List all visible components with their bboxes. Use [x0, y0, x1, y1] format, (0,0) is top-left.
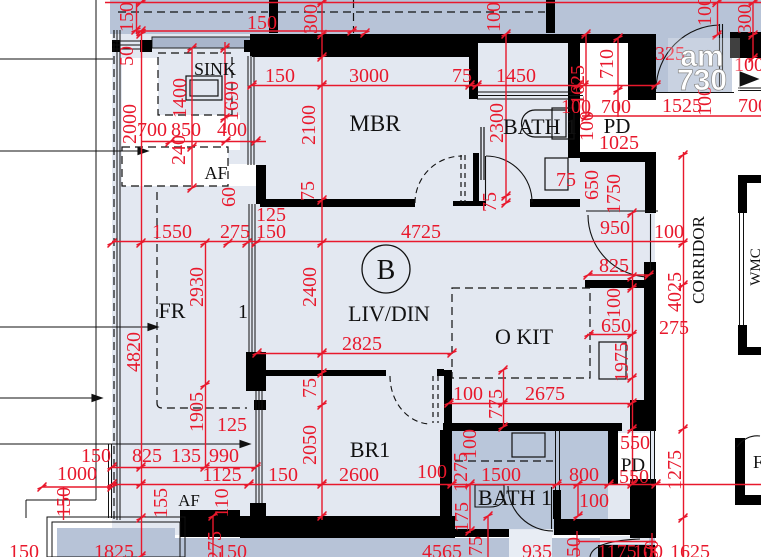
svg-text:MBR: MBR	[349, 111, 401, 136]
svg-text:700: 700	[137, 119, 167, 141]
svg-text:100: 100	[654, 221, 684, 243]
svg-text:75: 75	[452, 65, 472, 87]
svg-text:110: 110	[211, 488, 233, 517]
svg-text:1000: 1000	[57, 463, 97, 485]
svg-text:SINK: SINK	[194, 59, 236, 79]
svg-text:4565: 4565	[422, 541, 462, 557]
svg-text:75: 75	[297, 181, 319, 201]
svg-text:50: 50	[563, 537, 585, 557]
svg-text:100: 100	[459, 429, 481, 459]
svg-text:150: 150	[116, 2, 138, 32]
svg-text:825: 825	[132, 445, 162, 467]
svg-text:PD: PD	[621, 455, 645, 476]
svg-text:50: 50	[116, 46, 138, 66]
svg-text:1400: 1400	[169, 78, 191, 118]
svg-text:1175: 1175	[597, 541, 636, 557]
svg-text:300: 300	[300, 4, 322, 34]
svg-text:75: 75	[465, 536, 487, 556]
svg-text:O KIT: O KIT	[495, 324, 554, 349]
svg-text:2100: 2100	[298, 105, 320, 145]
svg-text:300: 300	[734, 4, 756, 34]
svg-text:1625: 1625	[567, 65, 589, 105]
svg-text:100: 100	[483, 2, 505, 32]
svg-text:100: 100	[579, 490, 609, 512]
svg-text:730: 730	[677, 64, 727, 97]
svg-text:4725: 4725	[401, 221, 441, 243]
svg-text:100: 100	[417, 461, 447, 483]
svg-text:700: 700	[738, 95, 761, 117]
svg-text:75: 75	[479, 192, 501, 212]
svg-text:2000: 2000	[119, 104, 141, 144]
svg-text:150: 150	[268, 464, 298, 486]
svg-text:1975: 1975	[611, 342, 633, 382]
svg-text:400: 400	[217, 119, 247, 141]
svg-text:1450: 1450	[496, 65, 536, 87]
svg-text:BATH 1: BATH 1	[478, 485, 552, 510]
svg-text:75: 75	[299, 378, 321, 398]
svg-text:2600: 2600	[339, 464, 379, 486]
svg-text:825: 825	[599, 255, 629, 277]
svg-text:2400: 2400	[299, 267, 321, 307]
svg-text:60: 60	[218, 187, 240, 207]
svg-text:135: 135	[171, 445, 201, 467]
svg-text:2930: 2930	[186, 267, 208, 307]
svg-text:2825: 2825	[342, 333, 382, 355]
svg-text:CORRIDOR: CORRIDOR	[689, 215, 708, 304]
svg-text:1275: 1275	[664, 450, 686, 490]
svg-text:150: 150	[53, 487, 75, 517]
svg-text:4820: 4820	[123, 332, 145, 372]
svg-text:710: 710	[596, 49, 618, 79]
svg-text:1550: 1550	[152, 221, 192, 243]
svg-text:175: 175	[451, 502, 473, 532]
svg-text:F: F	[753, 452, 761, 472]
svg-text:PD: PD	[604, 114, 631, 138]
svg-text:275: 275	[659, 317, 689, 339]
svg-text:150: 150	[9, 541, 39, 557]
svg-text:125: 125	[217, 414, 247, 436]
svg-text:FR: FR	[159, 298, 186, 323]
svg-text:1905: 1905	[186, 392, 208, 432]
svg-text:100: 100	[603, 288, 625, 318]
svg-text:1825: 1825	[94, 541, 134, 557]
svg-text:2675: 2675	[525, 383, 565, 405]
svg-text:1625: 1625	[670, 541, 710, 557]
svg-text:800: 800	[569, 464, 599, 486]
svg-text:50: 50	[641, 540, 663, 557]
svg-text:1750: 1750	[603, 174, 625, 214]
svg-text:75: 75	[556, 169, 576, 191]
svg-text:150: 150	[247, 12, 277, 34]
svg-text:AF: AF	[204, 163, 227, 183]
svg-text:240: 240	[168, 135, 190, 165]
svg-text:275: 275	[220, 221, 250, 243]
svg-text:935: 935	[522, 541, 552, 557]
svg-text:1: 1	[238, 301, 248, 323]
svg-text:1690: 1690	[221, 81, 243, 121]
svg-text:150: 150	[265, 65, 295, 87]
svg-text:125: 125	[256, 204, 286, 226]
svg-text:BATH 1: BATH 1	[503, 114, 577, 139]
svg-text:1125: 1125	[202, 464, 241, 486]
svg-text:WMC: WMC	[748, 248, 761, 286]
svg-text:100: 100	[453, 383, 483, 405]
svg-text:650: 650	[581, 170, 603, 200]
svg-text:550: 550	[620, 432, 650, 454]
svg-text:4025: 4025	[664, 272, 686, 312]
svg-text:2050: 2050	[299, 425, 321, 465]
svg-text:275: 275	[204, 531, 226, 557]
svg-text:LIV/DIN: LIV/DIN	[348, 301, 430, 326]
svg-text:100: 100	[694, 0, 716, 26]
svg-text:775: 775	[485, 389, 507, 419]
svg-text:B: B	[377, 255, 396, 286]
svg-text:100: 100	[576, 111, 598, 141]
svg-text:BR1: BR1	[350, 437, 390, 462]
svg-text:1500: 1500	[481, 464, 521, 486]
svg-text:950: 950	[600, 217, 630, 239]
svg-text:3000: 3000	[349, 65, 389, 87]
svg-text:AF: AF	[178, 491, 200, 510]
svg-text:155: 155	[150, 488, 172, 518]
